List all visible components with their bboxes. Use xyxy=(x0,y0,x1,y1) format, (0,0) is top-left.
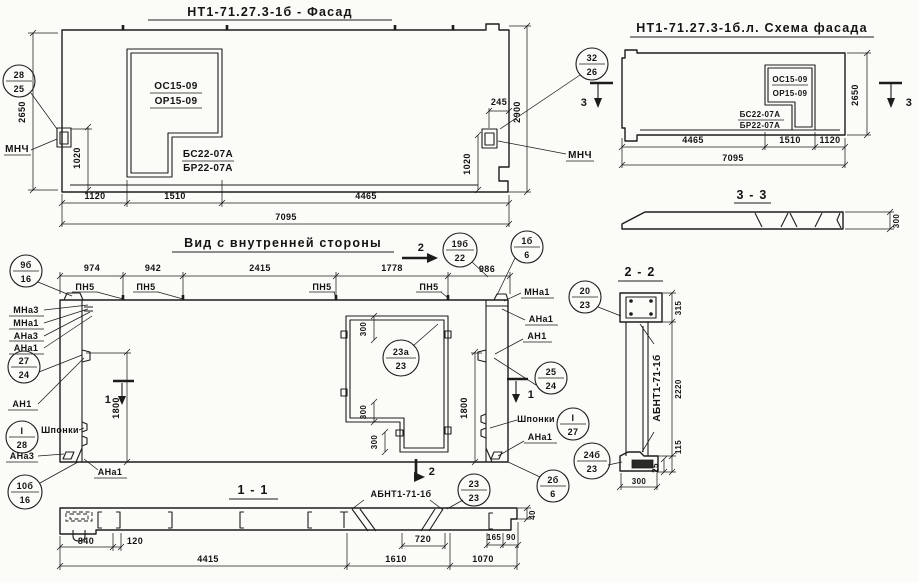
balloon-top: 24б xyxy=(584,450,601,460)
dim-text: 1020 xyxy=(72,147,82,169)
dim-text: 2650 xyxy=(17,101,27,123)
dim-text: 1070 xyxy=(472,554,494,564)
window-block-mark: ОС15-09 xyxy=(772,75,807,84)
leader xyxy=(494,358,536,385)
balloon-top: 20 xyxy=(580,286,591,296)
dim-1800-right xyxy=(471,349,482,465)
dim-text: 2650 xyxy=(850,84,860,106)
section3-arrow xyxy=(594,98,602,108)
balloon-top: 23а xyxy=(393,347,410,357)
section-3-3-profile xyxy=(622,212,843,229)
dim-1020-right xyxy=(475,132,481,193)
dim-text: 115 xyxy=(674,440,683,454)
dim-text: 942 xyxy=(145,263,161,273)
rebar-dot xyxy=(649,299,653,303)
loop-label-pn5: ПН5 xyxy=(312,282,331,292)
inner-top-dim-row xyxy=(57,272,513,296)
window-block-mark: ОР15-09 xyxy=(155,96,198,107)
section2-arrow xyxy=(414,472,425,482)
section-2-2: 2 - 2 АБНТ1-71-1б 315 2220 115 25 300 20… xyxy=(569,265,683,490)
balloon-bottom: 16 xyxy=(21,274,32,284)
dim-text: 7095 xyxy=(275,212,297,222)
inner-corner-keys xyxy=(63,452,502,459)
balloon-top: 1б xyxy=(521,236,532,246)
dim-text: 300 xyxy=(359,322,368,337)
balloon-bottom: 6 xyxy=(524,250,529,260)
dim-text: 90 xyxy=(506,533,516,542)
anchor-label-an1: АН1 xyxy=(12,399,31,409)
balloon-bottom: 16 xyxy=(20,495,31,505)
sill-block-mark: БС22-07А xyxy=(740,110,781,119)
drawing-sheet: НТ1-71.27.3-1б - Фасад ОС15-09 ОР15-09 Б… xyxy=(0,0,919,582)
dim-text: 300 xyxy=(892,214,901,229)
anchor-label: МНа1 xyxy=(13,318,39,328)
section-3-3: 3 - 3 300 xyxy=(622,188,901,232)
sill-block-mark: БР22-07А xyxy=(183,163,233,174)
window-block-mark: ОР15-09 xyxy=(773,89,808,98)
pn5-leaders xyxy=(72,292,448,299)
loop-label-pn5: ПН5 xyxy=(75,282,94,292)
balloon-bottom: 22 xyxy=(455,253,466,263)
section1-label: 1 xyxy=(528,389,535,401)
balloon-top: 32 xyxy=(587,53,598,63)
ana1-leader xyxy=(498,441,557,456)
beam-mark-abnt: АБНТ1-71-1б xyxy=(651,354,663,421)
dim-text: 1800 xyxy=(111,397,121,419)
dim-1800-left xyxy=(86,349,131,465)
balloon-top: 2б xyxy=(547,475,558,485)
balloon-bottom: 27 xyxy=(568,427,579,437)
section3-arrow xyxy=(887,98,895,108)
anchor-label: АНа3 xyxy=(14,331,39,341)
anchor-label: АНа1 xyxy=(98,467,123,477)
dim-text: 245 xyxy=(491,97,507,107)
section-1-1: 1 - 1 АБНТ1-71-1б 840 120 720 4415 1610 … xyxy=(57,474,537,570)
inner-view-title: Вид с внутренней стороны xyxy=(184,236,382,250)
dim-text: 974 xyxy=(84,263,100,273)
anchor-label: МНа1 xyxy=(524,287,550,297)
shear-key-label: Шпонки xyxy=(517,414,555,424)
bottom-detail-insert xyxy=(632,460,653,468)
leader xyxy=(508,462,540,477)
balloon-top: 25 xyxy=(546,367,557,377)
dim-300-b xyxy=(371,399,377,425)
section3-label: 3 xyxy=(581,97,588,109)
recess-slants xyxy=(352,509,443,531)
hidden-loop-detail xyxy=(66,512,92,521)
dim-text: 1120 xyxy=(84,191,105,201)
rebar-dot xyxy=(629,312,633,316)
dim-text: 315 xyxy=(674,301,683,316)
leader xyxy=(38,282,72,296)
balloon-top: 23 xyxy=(469,479,480,489)
facade-title: НТ1-71.27.3-1б - Фасад xyxy=(187,5,352,19)
facade-scheme-view: НТ1-71.27.3-1б.л. Схема фасада ОС15-09 О… xyxy=(581,21,913,168)
leader xyxy=(31,93,57,129)
dim-text: 165 xyxy=(487,533,502,542)
dim-text: 1778 xyxy=(381,263,403,273)
scheme-title: НТ1-71.27.3-1б.л. Схема фасада xyxy=(636,21,867,35)
section-1-1-title: 1 - 1 xyxy=(237,483,268,497)
dim-text: 7095 xyxy=(722,153,744,163)
stirrup-marks xyxy=(98,512,493,529)
window-block-mark: ОС15-09 xyxy=(154,81,197,92)
facade-top-ticks xyxy=(123,25,453,30)
dim-text: 300 xyxy=(632,477,647,486)
balloon-top: 28 xyxy=(14,70,25,80)
leader xyxy=(598,307,621,316)
leader xyxy=(40,462,78,483)
dim-text: 1610 xyxy=(385,554,407,564)
dim-text: 120 xyxy=(127,536,143,546)
dim-text: 840 xyxy=(78,536,94,546)
section-2-2-title: 2 - 2 xyxy=(624,265,655,279)
section-2-2-web xyxy=(626,322,648,456)
balloon-bottom: 25 xyxy=(14,84,25,94)
section2-label: 2 xyxy=(429,466,436,478)
dim-text: 4465 xyxy=(355,191,377,201)
dim-text: 720 xyxy=(415,534,431,544)
rebar-dot xyxy=(629,299,633,303)
dim-text: 1510 xyxy=(779,135,801,145)
an1-leader xyxy=(495,339,552,354)
section-1-1-profile xyxy=(60,508,517,534)
rebar-dot xyxy=(649,312,653,316)
dim-text: 4465 xyxy=(682,135,704,145)
balloon-top: 10б xyxy=(17,481,34,491)
dim-text: 2220 xyxy=(674,379,683,399)
anchor-label-an1: АН1 xyxy=(527,331,546,341)
panel-drawing: НТ1-71.27.3-1б - Фасад ОС15-09 ОР15-09 Б… xyxy=(0,0,919,582)
section2-label: 2 xyxy=(418,242,425,254)
dim-245 xyxy=(486,108,512,128)
dim-text: 1020 xyxy=(462,153,472,175)
balloon-bottom: 23 xyxy=(396,361,407,371)
balloon-top: I xyxy=(21,426,24,436)
dim-text: 40 xyxy=(528,510,537,520)
dim-text: 300 xyxy=(359,405,368,420)
dim-2650-left xyxy=(28,30,58,193)
balloon-bottom: 24 xyxy=(546,381,557,391)
dim-text: 4415 xyxy=(197,554,219,564)
facade-view: НТ1-71.27.3-1б - Фасад ОС15-09 ОР15-09 Б… xyxy=(3,5,608,227)
dim-text: 2415 xyxy=(249,263,271,273)
leader xyxy=(413,324,438,346)
dim-text: 25 xyxy=(651,463,660,473)
loop-label-pn5: ПН5 xyxy=(136,282,155,292)
balloon-bottom: 6 xyxy=(550,489,555,499)
balloon-bottom: 26 xyxy=(587,67,598,77)
section-3-3-title: 3 - 3 xyxy=(736,188,767,202)
anchor-label-mnch: МНЧ xyxy=(568,150,592,161)
balloon-bottom: 23 xyxy=(587,464,598,474)
dim-text: 1120 xyxy=(819,135,840,145)
sill-block-mark: БС22-07А xyxy=(183,149,233,160)
leader xyxy=(490,420,517,428)
section1-arrow xyxy=(512,394,520,403)
balloon-top: I xyxy=(572,413,575,423)
facade-right-anchor xyxy=(482,129,497,148)
section2-arrow xyxy=(427,253,438,263)
dim-text: 1510 xyxy=(164,191,186,201)
sill-block-mark: БР22-07А xyxy=(740,121,781,130)
inner-view: Вид с внутренней стороны 974 942 2415 17… xyxy=(6,231,589,509)
dim-text: 300 xyxy=(370,435,379,450)
balloon-bottom: 28 xyxy=(17,440,28,450)
loop-label-pn5: ПН5 xyxy=(419,282,438,292)
section1-label: 1 xyxy=(105,394,112,406)
shear-key-nubs xyxy=(82,414,486,446)
balloon-top: 19б xyxy=(452,239,469,249)
anchor-label: МНа3 xyxy=(13,305,39,315)
anchor-label: АНа1 xyxy=(529,314,554,324)
dim-text: 986 xyxy=(479,264,495,274)
facade-dim-row1 xyxy=(59,180,512,207)
beam-mark-abnt: АБНТ1-71-1б xyxy=(371,489,432,499)
balloon-top: 9б xyxy=(20,260,31,270)
anchor-label: АНа1 xyxy=(528,432,553,442)
balloon-bottom: 23 xyxy=(469,493,480,503)
balloon-bottom: 24 xyxy=(19,370,30,380)
anchor-label: АНа3 xyxy=(10,451,35,461)
section-3-3-notches xyxy=(755,213,841,228)
dim-300-c xyxy=(382,429,388,455)
shear-key-label: Шпонки xyxy=(41,425,79,435)
anchor-label-mnch: МНЧ xyxy=(5,144,29,155)
dim-300-33 xyxy=(845,209,894,232)
section3-label: 3 xyxy=(906,97,913,109)
dim-text: 1800 xyxy=(459,397,469,419)
inner-edge-details xyxy=(64,293,508,462)
balloon-bottom: 23 xyxy=(580,300,591,310)
facade-left-anchor xyxy=(57,128,71,147)
dim-300-a xyxy=(371,313,377,343)
leader xyxy=(497,258,515,295)
balloon-top: 27 xyxy=(19,356,30,366)
